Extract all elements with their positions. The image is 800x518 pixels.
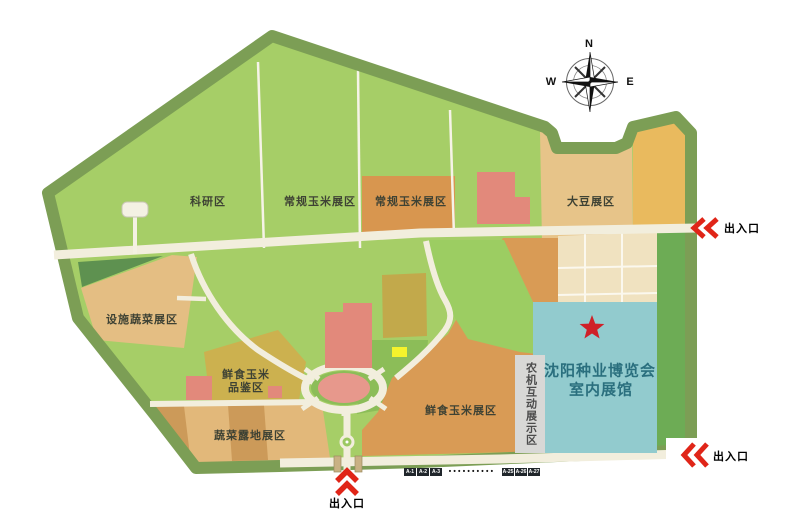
building-small-salmon-1 [186,376,212,400]
building-small-salmon-2 [268,386,282,398]
label-entrance-south: 出入口 [329,495,365,511]
building-central-salmon [325,303,372,368]
compass-north-label: N [585,38,593,50]
road-west-stub [177,298,206,299]
label-fresh-corn-exhibit: 鲜食玉米展区 [425,402,497,418]
site-map-graphic [0,0,800,518]
label-entrance-southeast: 出入口 [713,448,749,464]
mini-roundabout [340,435,355,450]
label-regular-corn-1: 常规玉米展区 [284,193,356,209]
label-agri-machinery: 农机互动展示区 [524,362,537,446]
expo-site-map: 科研区 常规玉米展区 常规玉米展区 大豆展区 设施蔬菜展区 鲜食玉米 品鉴区 蔬… [0,0,800,518]
label-facility-vegetable: 设施蔬菜展区 [106,311,178,327]
entrance-east-icon [694,219,717,237]
stall-badge: A-2 [417,468,429,476]
label-indoor-hall-line1: 沈阳种业博览会 [544,360,656,381]
entrance-south-icon [337,471,357,494]
entrance-southeast-box [666,438,716,472]
compass-east-label: E [626,76,633,88]
label-entrance-east: 出入口 [724,220,760,236]
field-olive-square [382,273,427,338]
stall-badge: A-3 [430,468,442,476]
field-east-green-strip [657,230,689,453]
stall-badge: A-1 [404,468,416,476]
stall-badge: A-26 [515,468,527,476]
label-soybean: 大豆展区 [567,193,615,209]
road-southwest [150,402,318,404]
stall-badge: A-27 [528,468,540,476]
field-golden-northeast [633,117,689,240]
label-fresh-corn-tasting-line2: 品鉴区 [228,379,264,395]
label-regular-corn-2: 常规玉米展区 [375,193,447,209]
compass-icon [562,52,618,112]
stall-ellipsis: •••••••••• [449,469,496,476]
label-vegetable-open-field: 蔬菜露地展区 [214,427,286,443]
label-indoor-hall-line2: 室内展馆 [569,379,633,400]
plaza-pink-center [318,373,370,403]
highlight-yellow-booth [392,347,407,357]
label-research-area: 科研区 [190,193,226,209]
compass-west-label: W [546,76,556,88]
stall-badge: A-25 [502,468,514,476]
